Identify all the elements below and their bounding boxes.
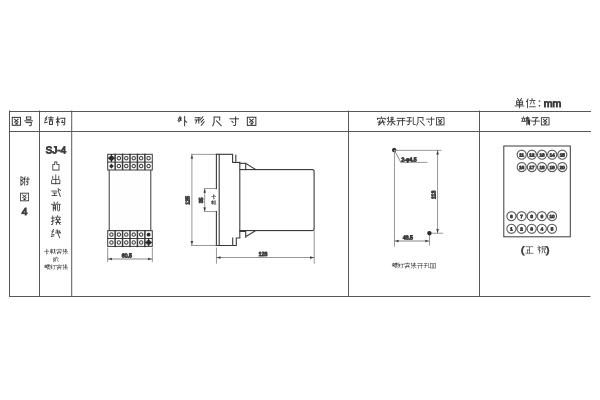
svg-text:48.5: 48.5: [403, 236, 413, 242]
svg-text:4: 4: [541, 227, 544, 232]
svg-text:4: 4: [22, 206, 28, 218]
svg-text:113: 113: [432, 191, 438, 199]
svg-text:mm: mm: [544, 98, 562, 110]
svg-text:128: 128: [259, 252, 268, 258]
svg-text:10: 10: [549, 214, 555, 219]
svg-text:2-φ4.5: 2-φ4.5: [401, 158, 416, 164]
svg-text:15: 15: [560, 152, 566, 157]
svg-text:19: 19: [550, 165, 556, 170]
svg-text:7: 7: [520, 214, 523, 219]
svg-text:6: 6: [510, 214, 513, 219]
svg-text:16: 16: [519, 165, 525, 170]
svg-text:2: 2: [520, 227, 523, 232]
svg-text:20: 20: [560, 165, 566, 170]
svg-text:3: 3: [530, 227, 533, 232]
svg-text:9: 9: [541, 214, 544, 219]
svg-text:35: 35: [199, 197, 205, 203]
svg-text:13: 13: [539, 152, 545, 157]
svg-text:SJ-4: SJ-4: [46, 145, 67, 156]
svg-text:5: 5: [551, 227, 554, 232]
svg-text:1: 1: [510, 227, 513, 232]
svg-text:18: 18: [539, 165, 545, 170]
svg-text:): ): [546, 245, 549, 255]
svg-text:8: 8: [530, 214, 533, 219]
svg-text:12: 12: [529, 152, 535, 157]
svg-text:17: 17: [529, 165, 535, 170]
svg-text:14: 14: [550, 152, 556, 157]
svg-text:(: (: [521, 245, 524, 255]
svg-text:125: 125: [186, 196, 192, 205]
svg-text:11: 11: [519, 152, 524, 157]
svg-text:60.5: 60.5: [122, 254, 132, 260]
